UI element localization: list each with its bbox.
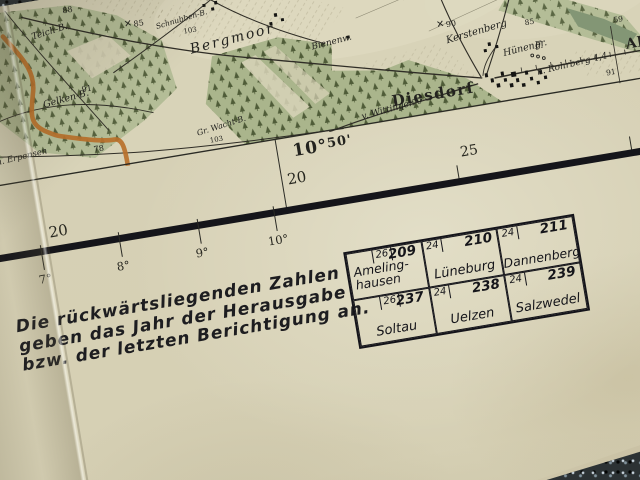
label-85: 85 — [133, 18, 145, 29]
label-90: 90 — [445, 19, 457, 30]
label-85b: 85 — [524, 17, 535, 27]
sheet-year: 24 — [506, 273, 528, 289]
sheet-number: 210 — [463, 231, 493, 249]
sheet-number: 237 — [395, 290, 425, 308]
longitude-degrees: 10° — [291, 136, 329, 162]
grid-line-20 — [275, 139, 288, 208]
sheet-year: 24 — [430, 285, 452, 301]
degree-label-9: 9° — [186, 243, 218, 262]
longitude-minutes: 50' — [326, 132, 353, 151]
sheet-name: Soltau — [359, 315, 435, 342]
label-91b: 91 — [605, 67, 616, 77]
grid-label-left: 20 — [47, 221, 69, 242]
label-88: 88 — [62, 5, 74, 16]
sheet-name: Uelzen — [434, 303, 510, 330]
sheet-number: 239 — [546, 264, 576, 282]
sheet-number: 211 — [539, 218, 569, 236]
photo-of-map-sheet: Teich-B. 88 85 91 Gelken-B. n. Erpensen … — [0, 0, 640, 480]
paper-sheet: Teich-B. 88 85 91 Gelken-B. n. Erpensen … — [0, 0, 640, 480]
sheet-index-table: 26 209 Ameling-hausen 24 210 Lüneburg 24… — [343, 214, 590, 349]
sheet-name: Ameling-hausen — [353, 258, 412, 292]
grid-label-20: 20 — [286, 168, 308, 189]
label-59: 59 — [613, 14, 624, 24]
degree-label-8: 8° — [107, 256, 139, 275]
sheet-name: Salzwedel — [510, 290, 586, 317]
label-78: 78 — [93, 143, 105, 154]
sheet-year: 24 — [422, 239, 444, 255]
grid-label-25: 25 — [459, 142, 479, 161]
sheet-number: 238 — [471, 277, 501, 295]
sheet-year: 24 — [498, 226, 520, 242]
degree-label-10: 10° — [262, 231, 294, 250]
